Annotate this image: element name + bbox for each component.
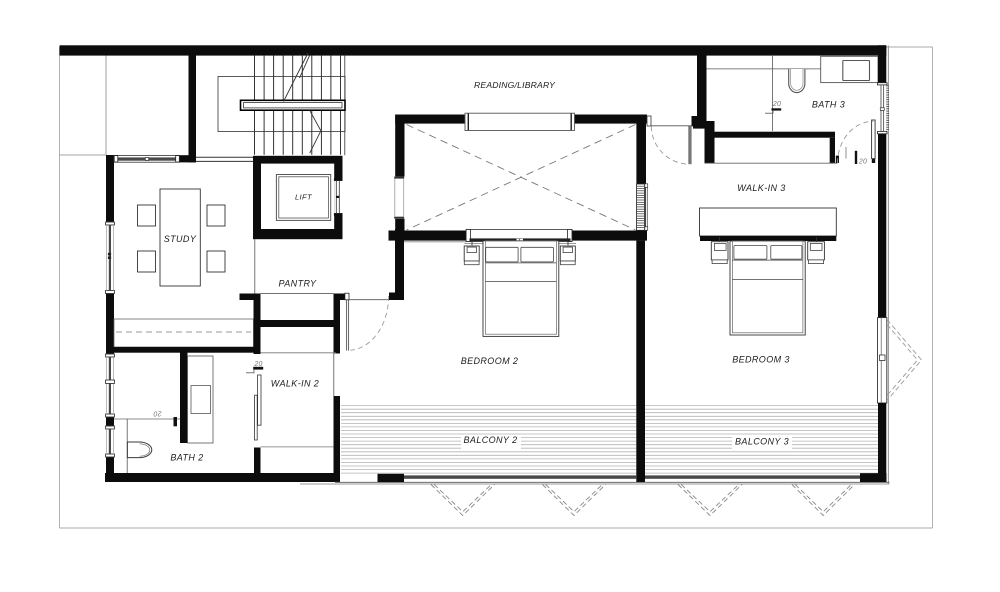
svg-text:BEDROOM 3: BEDROOM 3 [732, 355, 790, 365]
svg-text:BALCONY 2: BALCONY 2 [464, 435, 518, 445]
svg-text:LIFT: LIFT [295, 193, 313, 202]
svg-text:20: 20 [858, 159, 867, 166]
svg-text:PANTRY: PANTRY [279, 279, 318, 289]
svg-text:WALK-IN 2: WALK-IN 2 [271, 379, 319, 389]
svg-text:20: 20 [772, 101, 781, 108]
svg-text:BATH 3: BATH 3 [812, 100, 845, 110]
svg-text:WALK-IN 3: WALK-IN 3 [737, 183, 785, 193]
svg-text:20: 20 [153, 410, 162, 417]
svg-text:BATH 2: BATH 2 [170, 453, 203, 463]
svg-text:STUDY: STUDY [164, 234, 197, 244]
svg-text:READING/LIBRARY: READING/LIBRARY [474, 80, 556, 90]
svg-text:BALCONY 3: BALCONY 3 [735, 437, 789, 447]
svg-text:BEDROOM 2: BEDROOM 2 [461, 356, 519, 366]
